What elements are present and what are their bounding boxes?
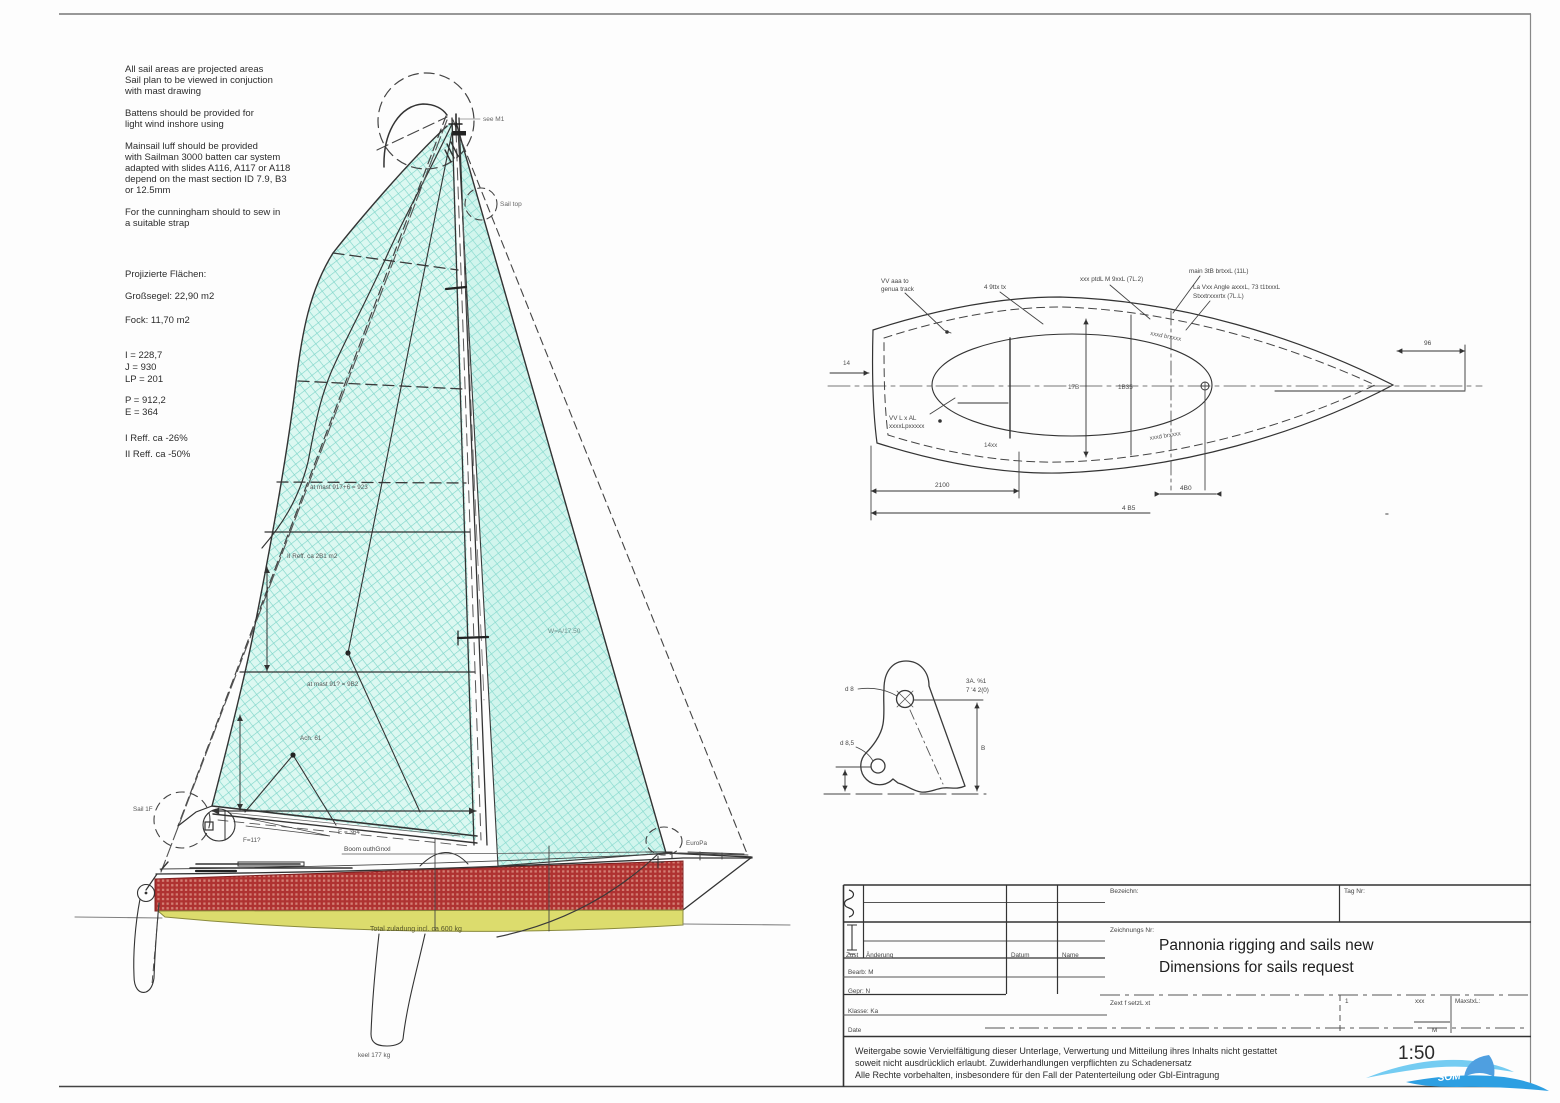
svg-text:with mast drawing: with mast drawing — [124, 86, 201, 97]
svg-text:with Sailman 3000 batten car s: with Sailman 3000 batten car system — [124, 152, 280, 163]
svg-text:Boom outhGrxxl: Boom outhGrxxl — [344, 846, 391, 853]
svg-text:B: B — [981, 745, 985, 752]
svg-text:1: 1 — [1345, 998, 1349, 1005]
svg-text:14: 14 — [843, 360, 851, 367]
svg-text:Mainsail luff should be provid: Mainsail luff should be provided — [125, 141, 258, 152]
svg-text:For the cunningham should to s: For the cunningham should to sew in — [125, 207, 280, 218]
svg-text:light wind inshore using: light wind inshore using — [125, 119, 224, 130]
svg-text:All sail areas are projected a: All sail areas are projected areas — [125, 64, 264, 75]
svg-text:Dimensions for sails request: Dimensions for sails request — [1159, 959, 1354, 976]
svg-text:Zust: Zust — [846, 952, 858, 959]
svg-text:I Reff. ca -26%: I Reff. ca -26% — [125, 433, 188, 444]
svg-text:Klasse: Ka: Klasse: Ka — [848, 1008, 879, 1015]
svg-text:4 B5: 4 B5 — [1122, 505, 1136, 512]
svg-text:Stxxtrxxxrtx (7L.L): Stxxtrxxxrtx (7L.L) — [1193, 293, 1244, 300]
svg-text:P = 912,2: P = 912,2 — [125, 395, 166, 406]
svg-text:La Vxx Angle axxxL, 73 t1txxxL: La Vxx Angle axxxL, 73 t1txxxL — [1193, 284, 1281, 291]
svg-text:Bezeichn:: Bezeichn: — [1110, 888, 1139, 895]
svg-text:17B: 17B — [1068, 384, 1079, 391]
svg-text:II Reff. ca -50%: II Reff. ca -50% — [125, 449, 191, 460]
svg-text:xxxd brxxxx: xxxd brxxxx — [1150, 331, 1182, 343]
svg-text:4 9ttx tx: 4 9ttx tx — [984, 284, 1007, 291]
svg-text:Pannonia rigging and sails new: Pannonia rigging and sails new — [1159, 937, 1374, 954]
svg-text:Ach. 61: Ach. 61 — [300, 735, 322, 742]
svg-text:Sail top: Sail top — [500, 201, 522, 208]
svg-text:at mast 91? = 9B2: at mast 91? = 9B2 — [307, 681, 359, 688]
svg-text:Total zuladung incl. ca 600 kg: Total zuladung incl. ca 600 kg — [370, 926, 462, 933]
svg-text:Großsegel: 22,90 m2: Großsegel: 22,90 m2 — [125, 291, 214, 302]
svg-text:14xx: 14xx — [984, 442, 998, 449]
svg-text:Weitergabe sowie Vervielfältig: Weitergabe sowie Vervielfältigung dieser… — [855, 1046, 1278, 1056]
svg-text:xxxd brxxxx: xxxd brxxxx — [1149, 431, 1181, 442]
svg-text:adapted with slides A116, A117: adapted with slides A116, A117 or A118 — [125, 163, 290, 174]
svg-text:at mast 917+6 = 923: at mast 917+6 = 923 — [310, 484, 368, 491]
svg-text:1B35: 1B35 — [1118, 384, 1133, 391]
svg-text:Date: Date — [848, 1027, 862, 1034]
svg-text:4B0: 4B0 — [1180, 485, 1192, 492]
svg-text:Fock: 11,70 m2: Fock: 11,70 m2 — [125, 315, 190, 326]
svg-text:Name: Name — [1062, 952, 1079, 959]
svg-text:EuroPa: EuroPa — [686, 840, 708, 847]
svg-text:Bearb: M: Bearb: M — [848, 969, 874, 976]
svg-text:xxxxLpxxxxx: xxxxLpxxxxx — [889, 423, 925, 430]
svg-text:MaxstxL:: MaxstxL: — [1455, 998, 1480, 1005]
svg-text:see M1: see M1 — [483, 116, 505, 123]
svg-text:E = 364: E = 364 — [125, 407, 158, 418]
svg-text:Sail 1F: Sail 1F — [133, 806, 153, 813]
svg-text:=: = — [1385, 511, 1389, 518]
svg-text:main 3tB brtxxL (11L): main 3tB brtxxL (11L) — [1189, 268, 1249, 275]
svg-text:W=A/17.50: W=A/17.50 — [548, 628, 581, 635]
svg-text:xxx ptdL M 9xxL (7L.2): xxx ptdL M 9xxL (7L.2) — [1080, 276, 1143, 283]
svg-text:keel 177 kg: keel 177 kg — [358, 1052, 391, 1059]
svg-text:F=11?: F=11? — [243, 837, 261, 844]
svg-text:depend on the mast section ID: depend on the mast section ID 7.9, B3 — [125, 174, 287, 185]
svg-text:genua track: genua track — [881, 286, 915, 293]
svg-text:3A. %1: 3A. %1 — [966, 678, 987, 685]
svg-text:LP = 201: LP = 201 — [125, 374, 163, 385]
svg-text:Projizierte Flächen:: Projizierte Flächen: — [125, 269, 206, 280]
svg-text:SOM: SOM — [1437, 1071, 1461, 1084]
svg-text:Datum: Datum — [1011, 952, 1030, 959]
svg-text:d 8,5: d 8,5 — [840, 740, 855, 747]
svg-text:7 '4 2(0): 7 '4 2(0) — [966, 687, 989, 694]
svg-text:a suitable strap: a suitable strap — [125, 218, 189, 229]
svg-text:Alle Rechte vorbehalten, insbe: Alle Rechte vorbehalten, insbesondere fü… — [855, 1070, 1219, 1080]
svg-text:d 8: d 8 — [845, 686, 854, 693]
svg-text:xxx: xxx — [1415, 998, 1425, 1005]
svg-text:Zext f setzL xt: Zext f setzL xt — [1110, 1000, 1150, 1007]
svg-text:VV aaa to: VV aaa to — [881, 278, 909, 285]
svg-text:Zeichnungs Nr:: Zeichnungs Nr: — [1110, 927, 1154, 934]
svg-text:2100: 2100 — [935, 482, 950, 489]
svg-text:1:50: 1:50 — [1398, 1043, 1435, 1064]
svg-text:VV L x AL: VV L x AL — [889, 415, 917, 422]
svg-text:M: M — [1432, 1027, 1437, 1034]
svg-text:Sail plan to be viewed in conj: Sail plan to be viewed in conjuction — [125, 75, 273, 86]
svg-text:96: 96 — [1424, 340, 1432, 347]
svg-text:soweit nicht ausdrücklich erla: soweit nicht ausdrücklich erlaubt. Zuwid… — [855, 1058, 1192, 1068]
svg-text:or 12.5mm: or 12.5mm — [125, 185, 170, 196]
svg-text:Tag Nr:: Tag Nr: — [1344, 888, 1365, 895]
svg-text:J = 930: J = 930 — [125, 362, 156, 373]
svg-text:I = 228,7: I = 228,7 — [125, 350, 162, 361]
svg-text:Battens should be provided for: Battens should be provided for — [125, 108, 254, 119]
svg-text:Gepr: N: Gepr: N — [848, 988, 870, 995]
svg-text:E = 364: E = 364 — [338, 829, 360, 836]
svg-text:Änderung: Änderung — [866, 951, 894, 959]
svg-text:II Reff. ca 2B1 m2: II Reff. ca 2B1 m2 — [287, 553, 338, 560]
